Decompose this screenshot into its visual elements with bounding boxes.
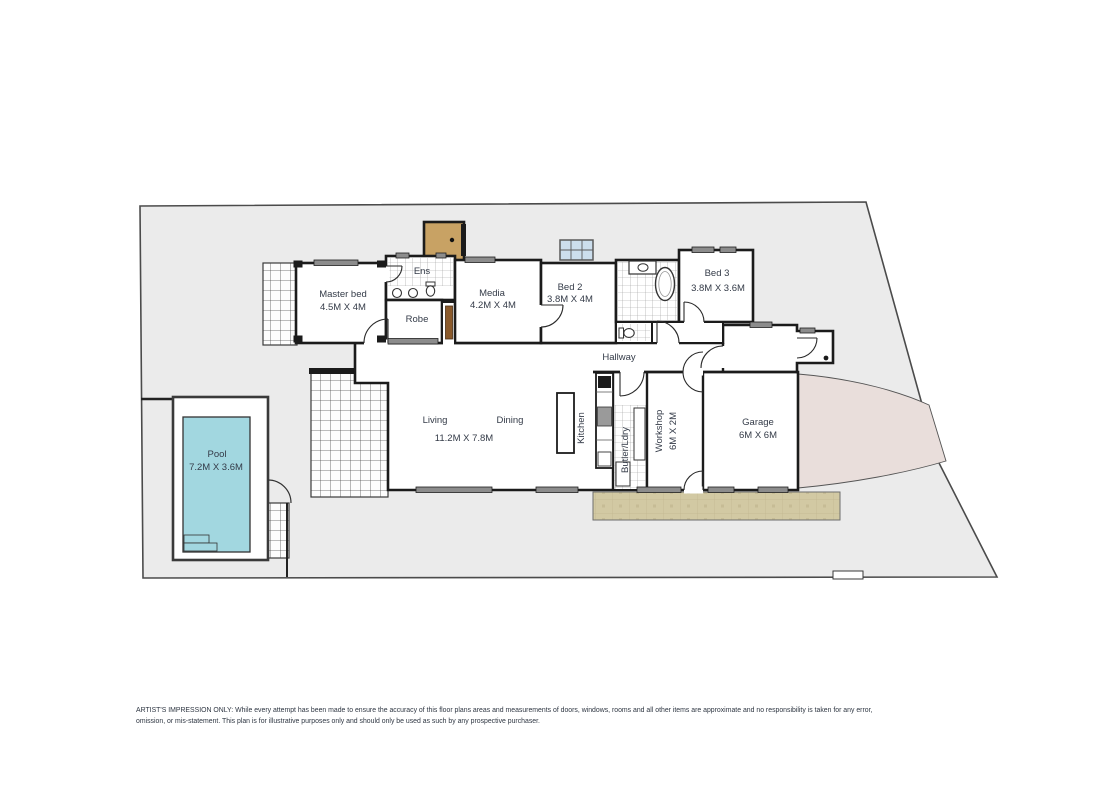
gap-butler-door: [620, 369, 644, 376]
shed-door-handle: [450, 238, 454, 242]
deck-living: [311, 372, 388, 497]
disclaimer-line-2: omission, or mis-statement. This plan is…: [136, 718, 540, 725]
room-label-garage: Garage: [742, 417, 774, 428]
floor-plan-page: Master bed 4.5M X 4M Ens Robe Media 4.2M…: [0, 0, 1114, 786]
room-label-butler-laundry: Butler/Ldry: [620, 427, 631, 473]
window-bed3-top-1: [692, 247, 714, 253]
gap-bed3-door: [684, 319, 704, 326]
room-label-dining: Dining: [497, 415, 524, 426]
ensuite-basin-1: [393, 289, 402, 298]
room-label-workshop: Workshop: [654, 410, 665, 453]
room-dims-workshop: 6M X 2M: [668, 412, 679, 450]
floor-plan-canvas: Master bed 4.5M X 4M Ens Robe Media 4.2M…: [0, 0, 1114, 786]
room-dims-pool: 7.2M X 3.6M: [189, 462, 243, 473]
post-master-bl: [294, 336, 303, 343]
kitchen-appliance-oven: [598, 376, 611, 388]
room-label-ens: Ens: [414, 266, 431, 277]
post-master-tr: [377, 261, 386, 268]
post-master-tl: [294, 261, 303, 268]
room-dims-master-bed: 4.5M X 4M: [320, 302, 366, 313]
room-label-bed2: Bed 2: [558, 282, 583, 293]
room-label-pool: Pool: [207, 449, 226, 460]
slider-hall-rear: [388, 339, 438, 345]
window-garage-rear-1: [708, 487, 734, 493]
slider-living-1: [416, 487, 492, 493]
room-label-bed3: Bed 3: [705, 268, 730, 279]
kitchen-island: [557, 393, 574, 453]
gap-porch-door: [720, 346, 727, 368]
room-label-hallway: Hallway: [602, 352, 636, 363]
deck-master: [263, 263, 297, 345]
kitchen-appliance-fridge: [598, 407, 612, 426]
paved-area: [593, 492, 840, 520]
bathtub: [656, 268, 675, 301]
gap-bed2-door: [538, 305, 545, 327]
window-porch-top: [750, 322, 772, 328]
boundary-notch: [833, 571, 863, 579]
window-master-top: [314, 260, 358, 266]
gap-wc-door: [657, 340, 679, 347]
room-label-master-bed: Master bed: [319, 289, 367, 300]
room-dims-media: 4.2M X 4M: [470, 300, 516, 311]
slider-living-2: [536, 487, 578, 493]
room-label-robe: Robe: [406, 314, 429, 325]
disclaimer-line-1: ARTIST'S IMPRESSION ONLY: While every at…: [136, 707, 872, 714]
pool-water: [183, 417, 250, 552]
room-label-media: Media: [479, 288, 506, 299]
gap-ens-door: [383, 266, 390, 282]
ensuite-toilet: [426, 286, 434, 296]
bathroom-basin: [638, 264, 648, 272]
window-ens-top-1: [396, 253, 409, 258]
shed-wall-stub: [461, 224, 466, 256]
butler-cabinet-1: [634, 408, 645, 460]
window-ens-top-2: [436, 253, 446, 258]
room-label-kitchen: Kitchen: [576, 412, 587, 444]
robe-timber-door: [446, 306, 453, 339]
room-dims-living-dining: 11.2M X 7.8M: [435, 433, 494, 444]
house-main-body: [355, 325, 833, 490]
wc-toilet-tank: [619, 328, 624, 338]
pool-step-1: [184, 535, 209, 543]
window-media-top: [465, 257, 495, 263]
window-entry-top: [800, 328, 815, 333]
gap-workshop-door: [683, 369, 703, 376]
room-dims-bed2: 3.8M X 4M: [547, 294, 593, 305]
room-label-living: Living: [423, 415, 448, 426]
ensuite-basin-2: [409, 289, 418, 298]
post-master-br: [377, 336, 386, 343]
porch-column: [824, 356, 829, 361]
pool-step-2: [184, 543, 217, 551]
window-garage-rear-2: [758, 487, 788, 493]
window-workshop-rear: [637, 487, 681, 493]
room-dims-garage: 6M X 6M: [739, 430, 777, 441]
room-dims-bed3: 3.8M X 3.6M: [691, 283, 745, 294]
kitchen-appliance-sink: [598, 452, 611, 466]
gap-robe-corridor: [443, 340, 454, 347]
gap-garage-rear-door: [684, 487, 703, 494]
window-bed3-top-2: [720, 247, 736, 253]
wc-toilet: [624, 329, 634, 338]
